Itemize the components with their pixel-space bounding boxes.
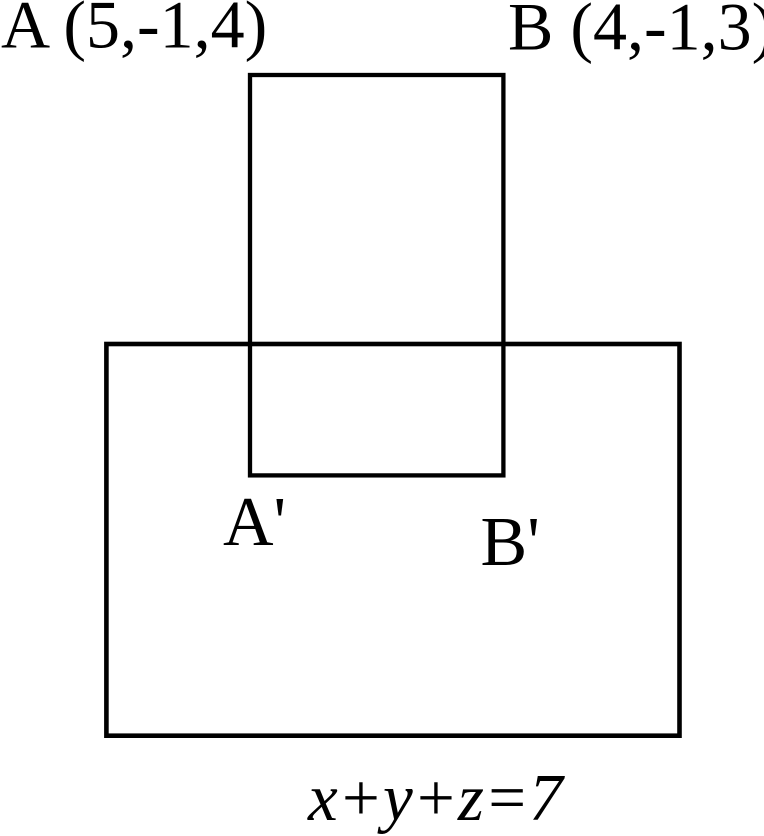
- svg-text:B': B': [481, 504, 540, 581]
- svg-text:A (5,-1,4): A (5,-1,4): [1, 0, 267, 63]
- svg-text:x+y+z=7: x+y+z=7: [307, 761, 565, 835]
- svg-text:A': A': [223, 484, 286, 561]
- svg-text:B (4,-1,3): B (4,-1,3): [508, 0, 764, 65]
